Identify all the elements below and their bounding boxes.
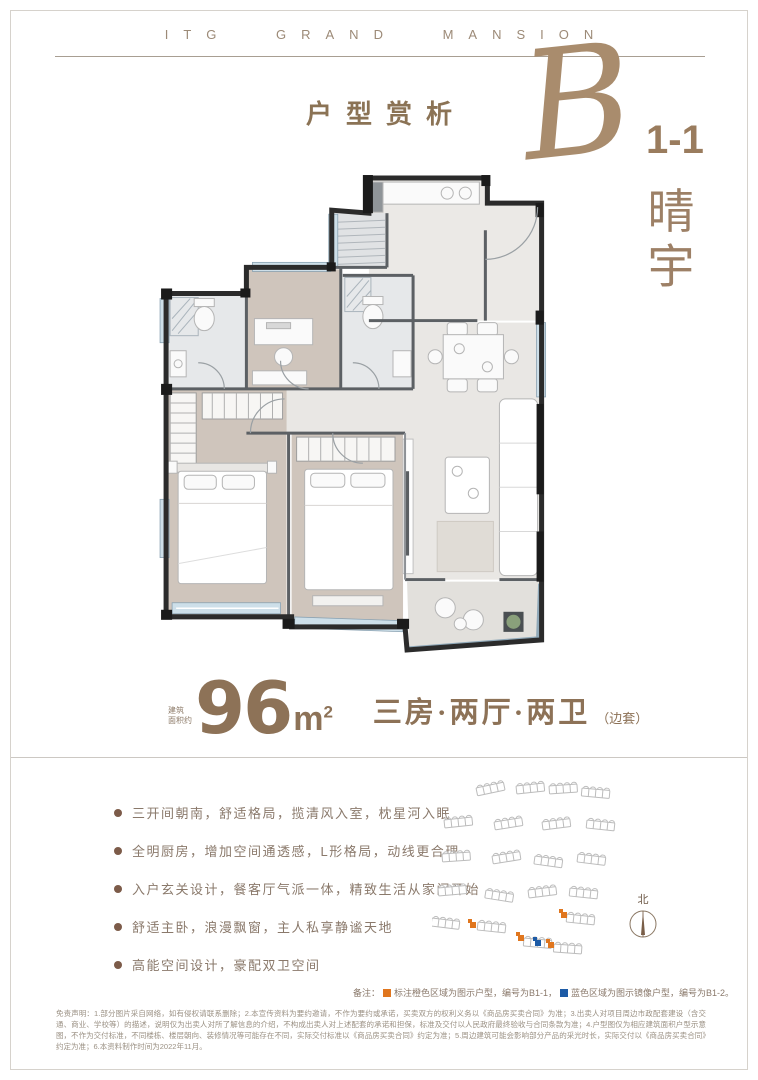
feature-item: 三开间朝南，舒适格局，揽清风入室，枕星河入眠 [114,803,480,822]
unit-letter: B [514,23,639,184]
orange-unit-marker [468,919,476,928]
orange-unit-marker [559,909,567,918]
legend-label: 备注： [353,986,380,999]
bullet-icon [114,961,122,969]
layout-note: （边套） [596,708,648,727]
feature-text: 入户玄关设计，餐客厅气派一体，精致生活从家门开始 [132,879,480,898]
feature-item: 舒适主卧，浪漫飘窗，主人私享静谧天地 [114,917,480,936]
section-divider [11,757,747,758]
disclaimer-text: 免责声明：1.部分图片采自网络，如有侵权请联系删除；2.本宣传资料为要约邀请，不… [56,1008,706,1052]
feature-text: 全明厨房，增加空间通透感，L形格局，动线更合理 [132,841,460,860]
feature-item: 全明厨房，增加空间通透感，L形格局，动线更合理 [114,841,480,860]
area-unit: m2 [293,702,333,736]
bullet-icon [114,809,122,817]
feature-text: 高能空间设计，豪配双卫空间 [132,955,321,974]
unit-name: 晴宇 [645,186,697,297]
area-unit-m: m [293,700,323,738]
floorplan-drawing [146,170,640,662]
orange-unit-marker [516,932,524,941]
brand-title: ITG GRAND MANSION [0,27,758,42]
area-prefix-line2: 面积约 [168,716,192,726]
siteplan-map: 北 [432,772,738,982]
brochure-page: ITG GRAND MANSION 户型赏析 B 1-1 晴宇 [0,0,758,1080]
area-prefix: 建筑 面积约 [168,706,192,726]
area-prefix-line1: 建筑 [168,706,192,716]
feature-list: 三开间朝南，舒适格局，揽清风入室，枕星河入眠 全明厨房，增加空间通透感，L形格局… [114,803,480,993]
bullet-icon [114,885,122,893]
area-unit-exp: 2 [323,702,332,721]
area-summary: 建筑 面积约 96 m2 三房·两厅·两卫 （边套） [168,680,648,738]
bullet-icon [114,847,122,855]
siteplan-buildings [432,780,615,954]
feature-item: 高能空间设计，豪配双卫空间 [114,955,480,974]
orange-swatch-icon [383,989,391,997]
north-compass: 北 [630,893,656,937]
legend: 备注： 标注橙色区域为图示户型，编号为B1-1， 蓝色区域为图示镜像户型，编号为… [353,986,734,999]
legend-blue-text: 蓝色区域为图示镜像户型，编号为B1-2。 [571,986,734,999]
room-layout: 三房·两厅·两卫 [373,689,590,731]
legend-orange-text: 标注橙色区域为图示户型，编号为B1-1， [394,986,557,999]
feature-item: 入户玄关设计，餐客厅气派一体，精致生活从家门开始 [114,879,480,898]
area-value: 96 [195,680,291,738]
unit-number: 1-1 [646,118,704,163]
north-label: 北 [638,893,649,906]
feature-text: 三开间朝南，舒适格局，揽清风入室，枕星河入眠 [132,803,451,822]
page-title: 户型赏析 [0,94,758,131]
blue-swatch-icon [560,989,568,997]
feature-text: 舒适主卧，浪漫飘窗，主人私享静谧天地 [132,917,393,936]
bullet-icon [114,923,122,931]
